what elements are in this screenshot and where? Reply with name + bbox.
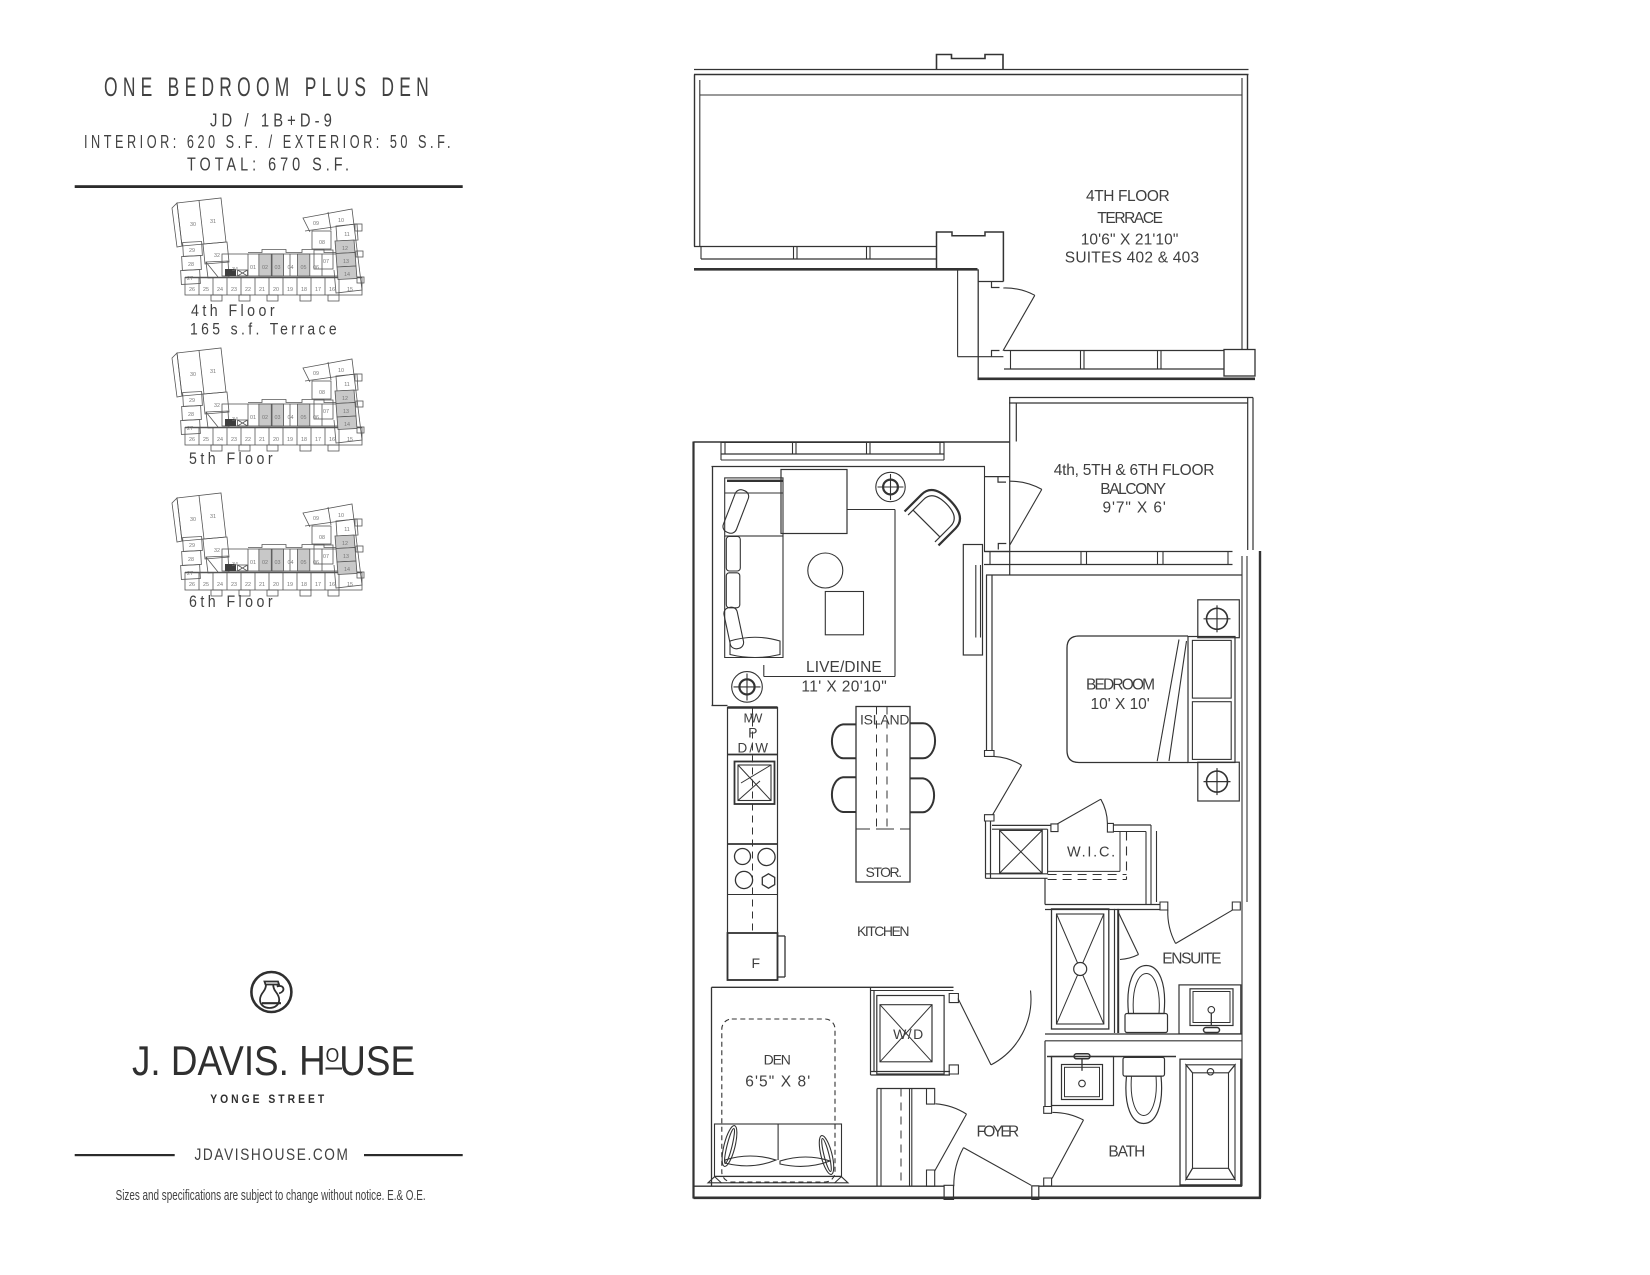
svg-text:STOR.: STOR. xyxy=(866,864,903,880)
svg-text:BALCONY: BALCONY xyxy=(1100,481,1166,498)
svg-text:YONGE STREET: YONGE STREET xyxy=(210,1092,327,1106)
svg-text:INTERIOR: 620 S.F. / EXTERIOR:: INTERIOR: 620 S.F. / EXTERIOR: 50 S.F. xyxy=(84,132,454,152)
svg-text:10'6" X 21'10": 10'6" X 21'10" xyxy=(1081,232,1179,249)
svg-text:5th Floor: 5th Floor xyxy=(189,450,276,468)
svg-text:FOYER: FOYER xyxy=(977,1124,1020,1141)
svg-text:BEDROOM: BEDROOM xyxy=(1086,677,1155,694)
svg-text:4TH FLOOR: 4TH FLOOR xyxy=(1086,188,1170,205)
svg-text:Sizes and specifications are s: Sizes and specifications are subject to … xyxy=(116,1188,426,1204)
svg-text:SUITES 402 & 403: SUITES 402 & 403 xyxy=(1065,250,1200,267)
svg-text:W.I.C.: W.I.C. xyxy=(1067,845,1116,861)
svg-text:P: P xyxy=(748,725,758,741)
svg-text:BATH: BATH xyxy=(1108,1144,1145,1161)
svg-text:D/W: D/W xyxy=(738,741,769,756)
svg-text:6th Floor: 6th Floor xyxy=(189,593,276,611)
svg-text:165 s.f. Terrace: 165 s.f. Terrace xyxy=(190,321,340,339)
svg-text:ENSUITE: ENSUITE xyxy=(1162,951,1222,968)
svg-text:9'7" X 6': 9'7" X 6' xyxy=(1103,500,1167,517)
svg-text:MW: MW xyxy=(743,711,763,726)
svg-text:11' X 20'10": 11' X 20'10" xyxy=(801,679,887,696)
svg-text:TOTAL: 670 S.F.: TOTAL: 670 S.F. xyxy=(187,155,353,175)
svg-text:4th, 5TH & 6TH FLOOR: 4th, 5TH & 6TH FLOOR xyxy=(1054,462,1215,479)
svg-text:KITCHEN: KITCHEN xyxy=(857,923,910,939)
svg-text:F: F xyxy=(751,955,760,971)
svg-text:ONE BEDROOM PLUS DEN: ONE BEDROOM PLUS DEN xyxy=(104,72,434,102)
svg-text:DEN: DEN xyxy=(764,1052,792,1068)
svg-text:4th Floor: 4th Floor xyxy=(191,302,278,320)
svg-text:ISLAND: ISLAND xyxy=(860,712,910,728)
svg-text:TERRACE: TERRACE xyxy=(1097,210,1163,227)
svg-text:10' X 10': 10' X 10' xyxy=(1091,696,1151,713)
svg-text:6'5" X 8': 6'5" X 8' xyxy=(745,1074,810,1091)
svg-text:JD / 1B+D-9: JD / 1B+D-9 xyxy=(210,111,336,131)
svg-text:J. DAVIS. HOUSE: J. DAVIS. HOUSE xyxy=(132,1037,415,1084)
svg-text:W/D: W/D xyxy=(893,1026,924,1042)
svg-text:JDAVISHOUSE.COM: JDAVISHOUSE.COM xyxy=(195,1145,350,1164)
svg-text:LIVE/DINE: LIVE/DINE xyxy=(806,659,882,676)
